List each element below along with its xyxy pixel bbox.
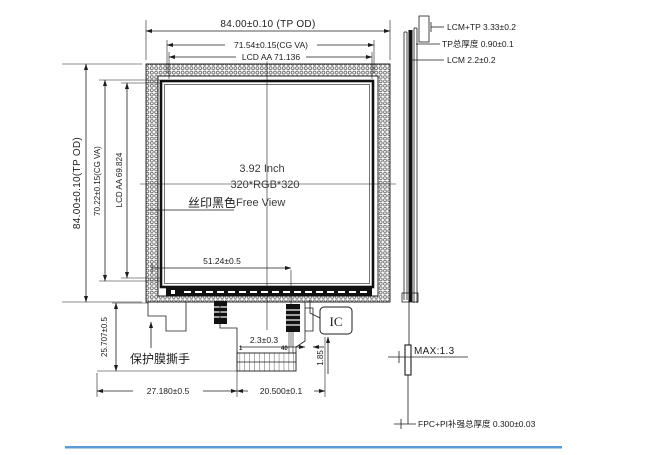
film-tab-label: 保护膜撕手 <box>130 352 190 366</box>
bonding-strip <box>166 288 372 296</box>
resolution-label: 320*RGB*320 <box>230 179 299 191</box>
dim-conn-drop: 1.85 <box>316 350 325 366</box>
drawing-canvas: 3.92 Inch 320*RGB*320 Free View 丝印黑色 84.… <box>0 0 650 455</box>
lcm-tp-label: LCM+TP 3.33±0.2 <box>447 22 516 32</box>
fpc-connector <box>237 353 296 371</box>
lcd-module-drawing: 3.92 Inch 320*RGB*320 Free View 丝印黑色 84.… <box>0 0 650 455</box>
dim-top-od: 84.00±0.10 (TP OD) <box>220 19 315 30</box>
ic-label: IC <box>330 314 343 329</box>
silkscreen-label: 丝印黑色 <box>188 196 236 210</box>
dim-fpc-width: 20.500±0.1 <box>260 386 303 396</box>
dim-left-aa: LCD AA 69.824 <box>115 152 124 207</box>
tp-total-label: TP总厚度 0.90±0.1 <box>442 39 514 49</box>
dim-edge-gap: 2.3±0.3 <box>250 335 279 345</box>
lcm-label: LCM 2.2±0.2 <box>447 55 496 65</box>
fpc-notch <box>305 308 313 331</box>
tp-fpc-tab <box>214 301 227 324</box>
size-label: 3.92 Inch <box>239 163 284 175</box>
dim-top-aa: LCD AA 71.136 <box>242 52 300 62</box>
fpc-stiffener <box>405 345 411 375</box>
fpc-area: 保护膜撕手 1 40 <box>97 300 352 397</box>
dim-fpc-left: 27.180±0.5 <box>147 386 190 396</box>
dim-left-od: 84.00±0.10(TP OD) <box>72 137 83 229</box>
fpc-pi-label: FPC+PI补强总厚度 0.300±0.03 <box>418 419 536 429</box>
side-stack <box>402 28 418 303</box>
dim-top-cg: 71.54±0.15(CG VA) <box>234 40 308 50</box>
ic-leader <box>310 300 320 318</box>
front-view: 3.92 Inch 320*RGB*320 Free View 丝印黑色 84.… <box>62 19 396 347</box>
dim-left-cg: 70.22±0.15(CG VA) <box>93 146 102 216</box>
left-dimensions: 84.00±0.10(TP OD) 70.22±0.15(CG VA) LCD … <box>62 64 160 302</box>
ic-callout: IC <box>310 300 352 334</box>
dim-fpc-pos: 51.24±0.5 <box>203 256 241 266</box>
side-top-cap <box>419 16 429 42</box>
bottom-accent-bar <box>65 446 562 449</box>
side-view: LCM+TP 3.33±0.2 TP总厚度 0.90±0.1 LCM 2.2±0… <box>388 16 536 429</box>
film-tab-outline <box>148 302 186 331</box>
free-view-label: Free View <box>236 197 285 209</box>
dim-tab-drop: 25.707±0.5 <box>100 316 109 357</box>
max-bend-label: MAX:1.3 <box>414 346 455 357</box>
side-fpc <box>405 302 411 424</box>
